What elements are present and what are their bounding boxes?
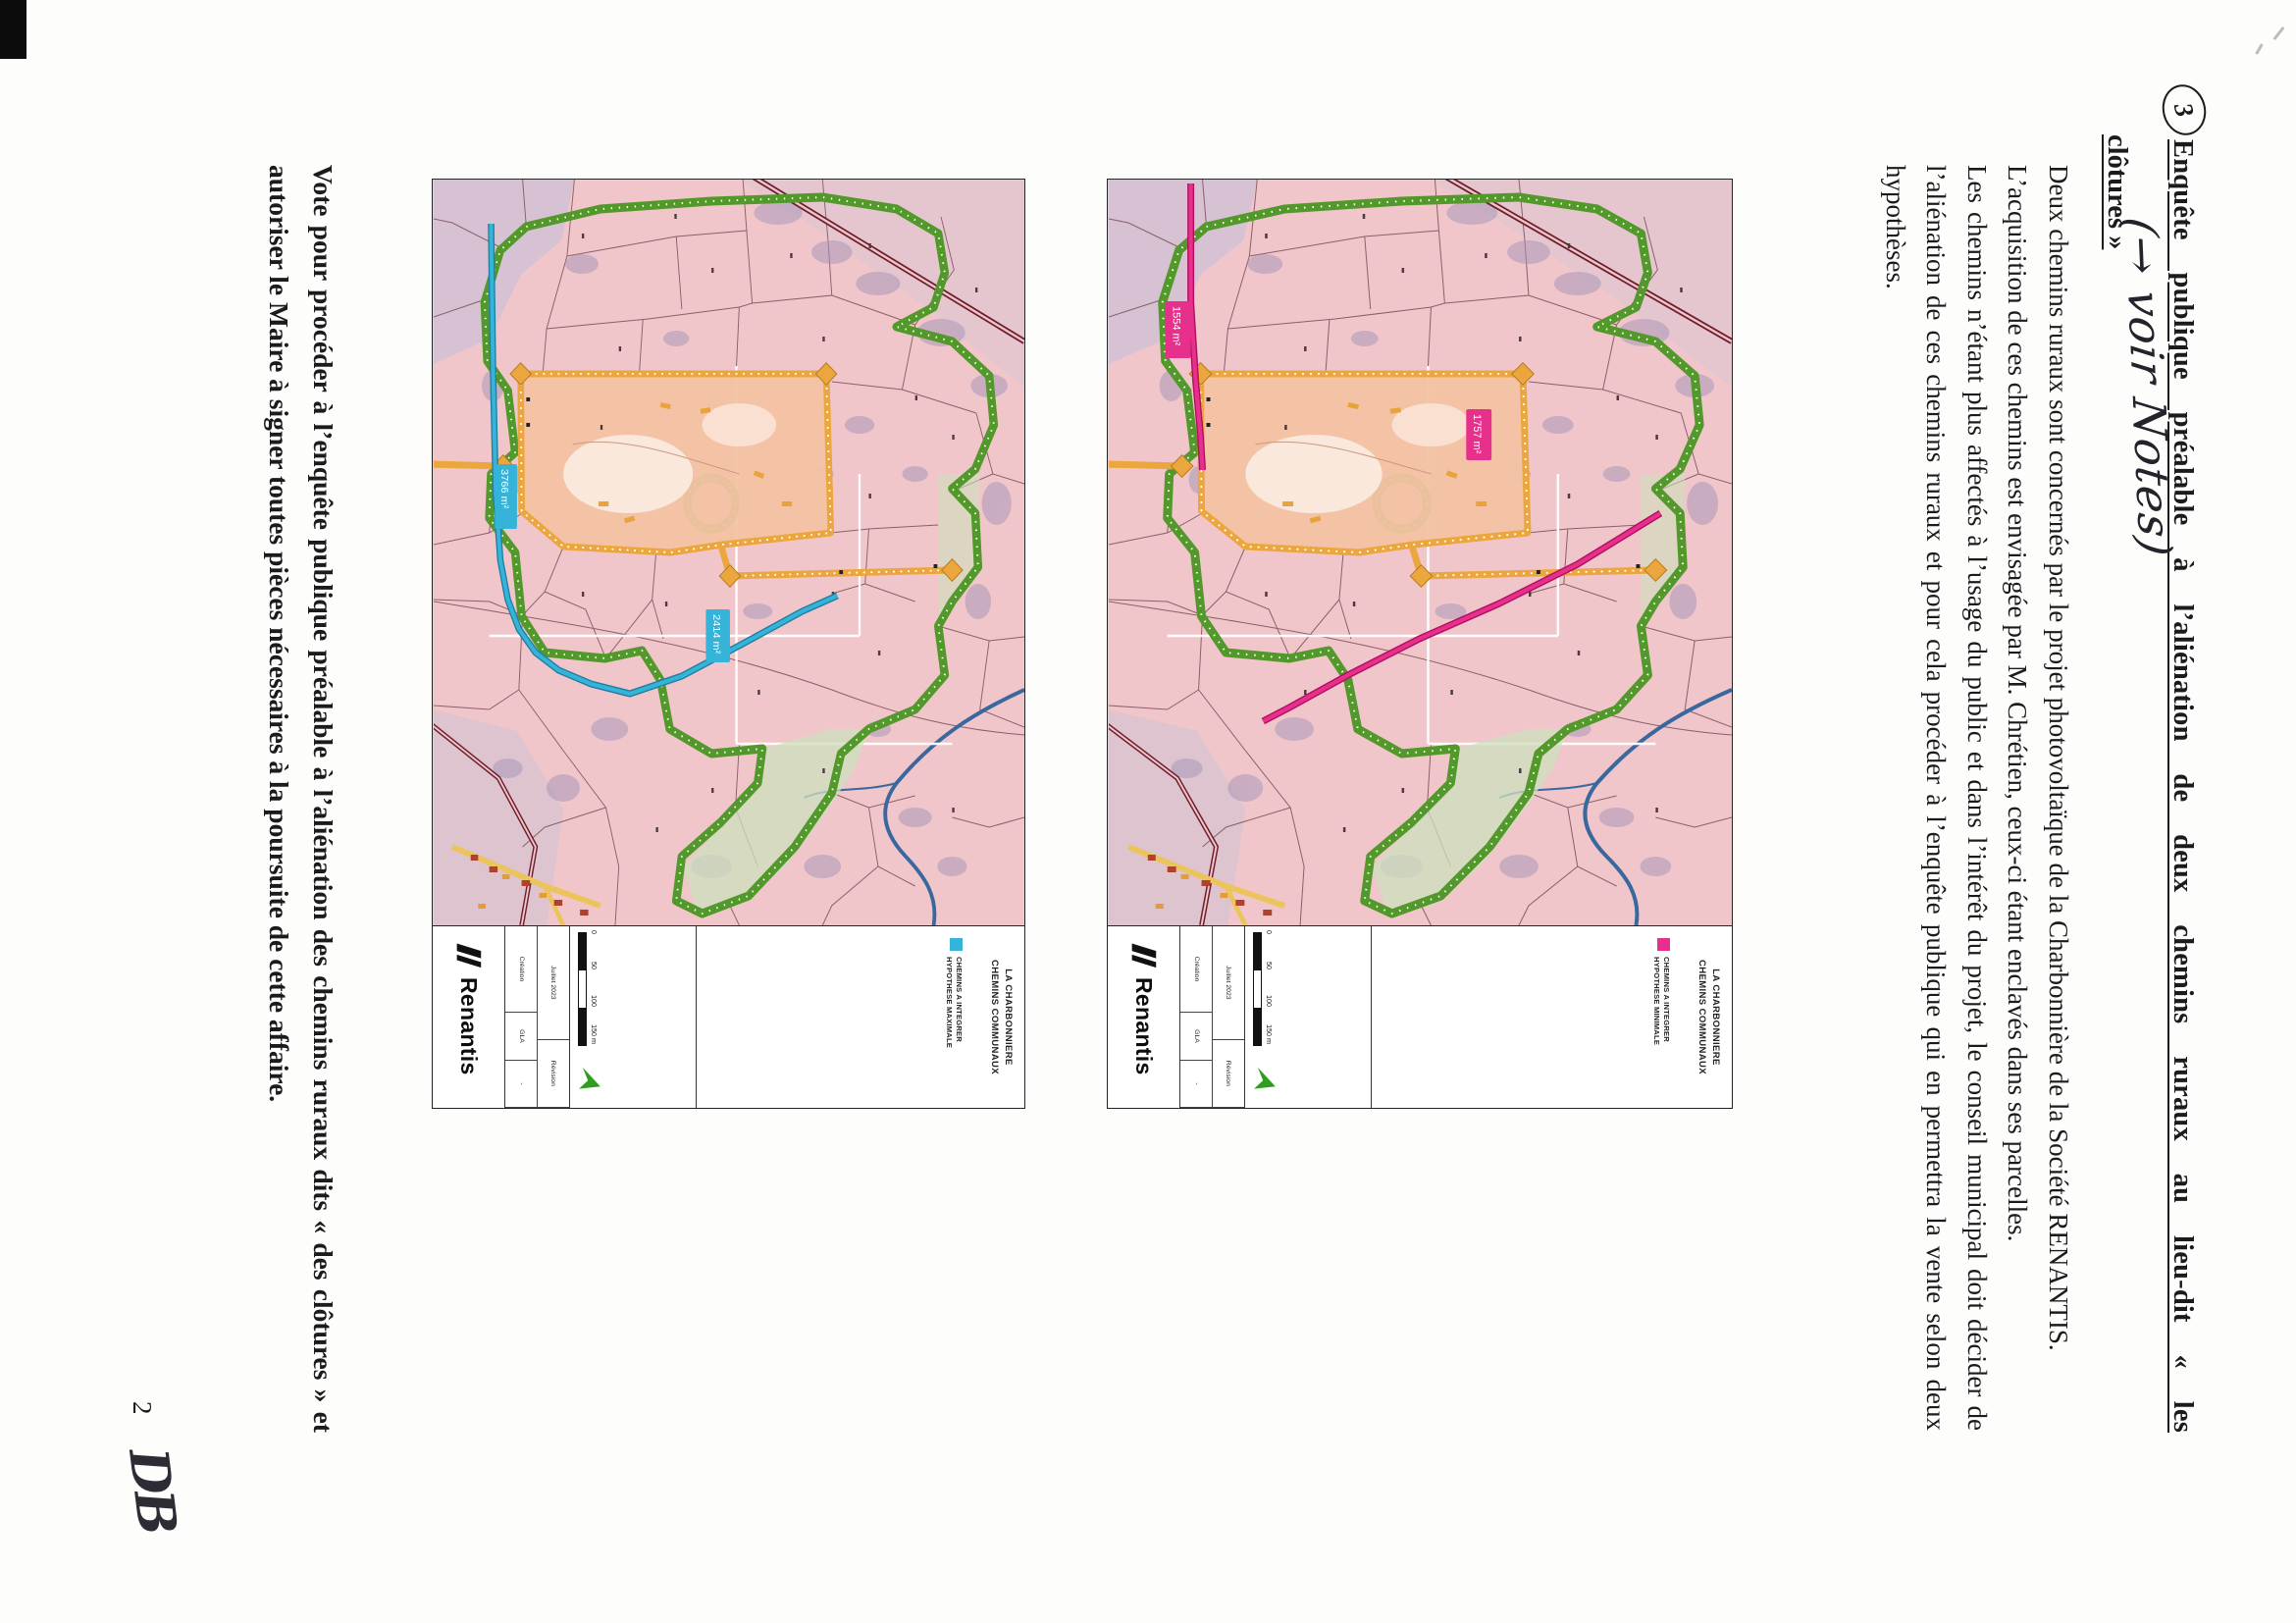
route-length-label: 1757 m²: [1471, 414, 1483, 454]
paragraph-3: Les chemins n’étant plus affectés à l’us…: [1875, 165, 1998, 1431]
map-canvas: 3766 m² 2414 m²: [434, 180, 1024, 925]
scale-box: 0 50 100 150 m: [569, 926, 697, 1108]
map-titleblock: LA CHARBONNIERE CHEMINS COMMUNAUX CHEMIN…: [1108, 925, 1732, 1108]
map-titleblock: LA CHARBONNIERE CHEMINS COMMUNAUX CHEMIN…: [433, 925, 1024, 1108]
legend-swatch: [950, 938, 963, 951]
creation-label: Création: [505, 926, 538, 1013]
scale-tick: 150 m: [590, 1024, 599, 1044]
legend-line1: CHEMINS A INTEGRER: [955, 957, 964, 1042]
paragraph-1: Deux chemins ruraux sont concernés par l…: [2038, 165, 2079, 1431]
scale-tick: 0: [590, 930, 599, 934]
legend-line2: HYPOTHESE MAXIMALE: [945, 957, 954, 1048]
revision-value: -: [505, 1061, 538, 1108]
page-number: 2: [127, 1401, 157, 1415]
route-length-label: 2414 m²: [710, 614, 722, 654]
pencil-speck: [2255, 43, 2264, 55]
legend-line1: CHEMINS A INTEGRER: [1662, 957, 1671, 1042]
logo-text: Renantis: [455, 977, 482, 1075]
revision-label: Révision: [1213, 1040, 1244, 1108]
author: GLA: [1180, 1013, 1213, 1061]
north-arrow-icon: [576, 1067, 605, 1096]
scale-bar: [578, 932, 587, 1046]
revision-value: -: [1180, 1061, 1213, 1108]
paragraph-2: L’acquisition de ces chemins est envisag…: [1997, 165, 2038, 1431]
figure-hypothese-minimale: 1554 m² 1757 m² LA CHARBONNIERE CHEMINS …: [1107, 179, 1733, 1109]
map-info-table: Juillet 2023 Révision Création GLA -: [505, 926, 570, 1108]
route-length-label: 3766 m²: [498, 469, 510, 509]
revision-label: Révision: [538, 1040, 569, 1108]
map-title: LA CHARBONNIERE CHEMINS COMMUNAUX: [1695, 926, 1722, 1108]
map-title: LA CHARBONNIERE CHEMINS COMMUNAUX: [987, 926, 1015, 1108]
body-text: Deux chemins ruraux sont concernés par l…: [1875, 165, 2079, 1431]
scan-edge-artifact: [0, 0, 26, 59]
scale-box: 0 50 100 150 m: [1244, 926, 1372, 1108]
scale-tick: 100: [590, 995, 599, 1007]
map-info-table: Juillet 2023 Révision Création GLA -: [1180, 926, 1245, 1108]
scale-bar: [1253, 932, 1262, 1046]
scale-tick: 100: [1265, 995, 1274, 1007]
scale-tick: 50: [1265, 962, 1274, 969]
map-hypothese-minimale: 1554 m² 1757 m²: [1108, 180, 1732, 925]
map-legend: CHEMINS A INTEGRER HYPOTHESE MAXIMALE: [944, 938, 964, 1104]
legend-swatch: [1657, 938, 1670, 951]
north-arrow-icon: [1251, 1067, 1280, 1096]
logo-text: Renantis: [1130, 977, 1157, 1075]
pencil-speck: [2272, 26, 2284, 40]
logo-block: Renantis: [1108, 926, 1180, 1108]
renantis-logo-icon: [452, 936, 486, 969]
handwritten-initials: DB: [117, 1444, 189, 1535]
creation-label: Création: [1180, 926, 1213, 1013]
legend-line2: HYPOTHESE MINIMALE: [1652, 957, 1661, 1045]
logo-block: Renantis: [433, 926, 505, 1108]
author: GLA: [505, 1013, 538, 1061]
scanned-page: 3 Enquête publique préalable à l’aliénat…: [0, 0, 2296, 1623]
renantis-logo-icon: [1127, 936, 1161, 969]
map-legend: CHEMINS A INTEGRER HYPOTHESE MINIMALE: [1651, 938, 1671, 1104]
heading-number-circle: 3: [2157, 79, 2211, 139]
heading-number: 3: [2167, 100, 2200, 121]
map-canvas: 1554 m² 1757 m²: [1109, 180, 1732, 925]
figure-hypothese-maximale: 3766 m² 2414 m² LA CHARBONNIERE CHEMINS …: [432, 179, 1025, 1109]
scale-tick: 0: [1265, 930, 1274, 934]
creation-date: Juillet 2023: [1213, 926, 1244, 1040]
map-hypothese-maximale: 3766 m² 2414 m²: [433, 180, 1024, 925]
scale-tick: 150 m: [1265, 1024, 1274, 1044]
creation-date: Juillet 2023: [538, 926, 569, 1040]
vote-paragraph: Vote pour procéder à l’enquête publique …: [257, 165, 345, 1433]
route-length-label: 1554 m²: [1171, 306, 1182, 346]
scale-tick: 50: [590, 962, 599, 969]
